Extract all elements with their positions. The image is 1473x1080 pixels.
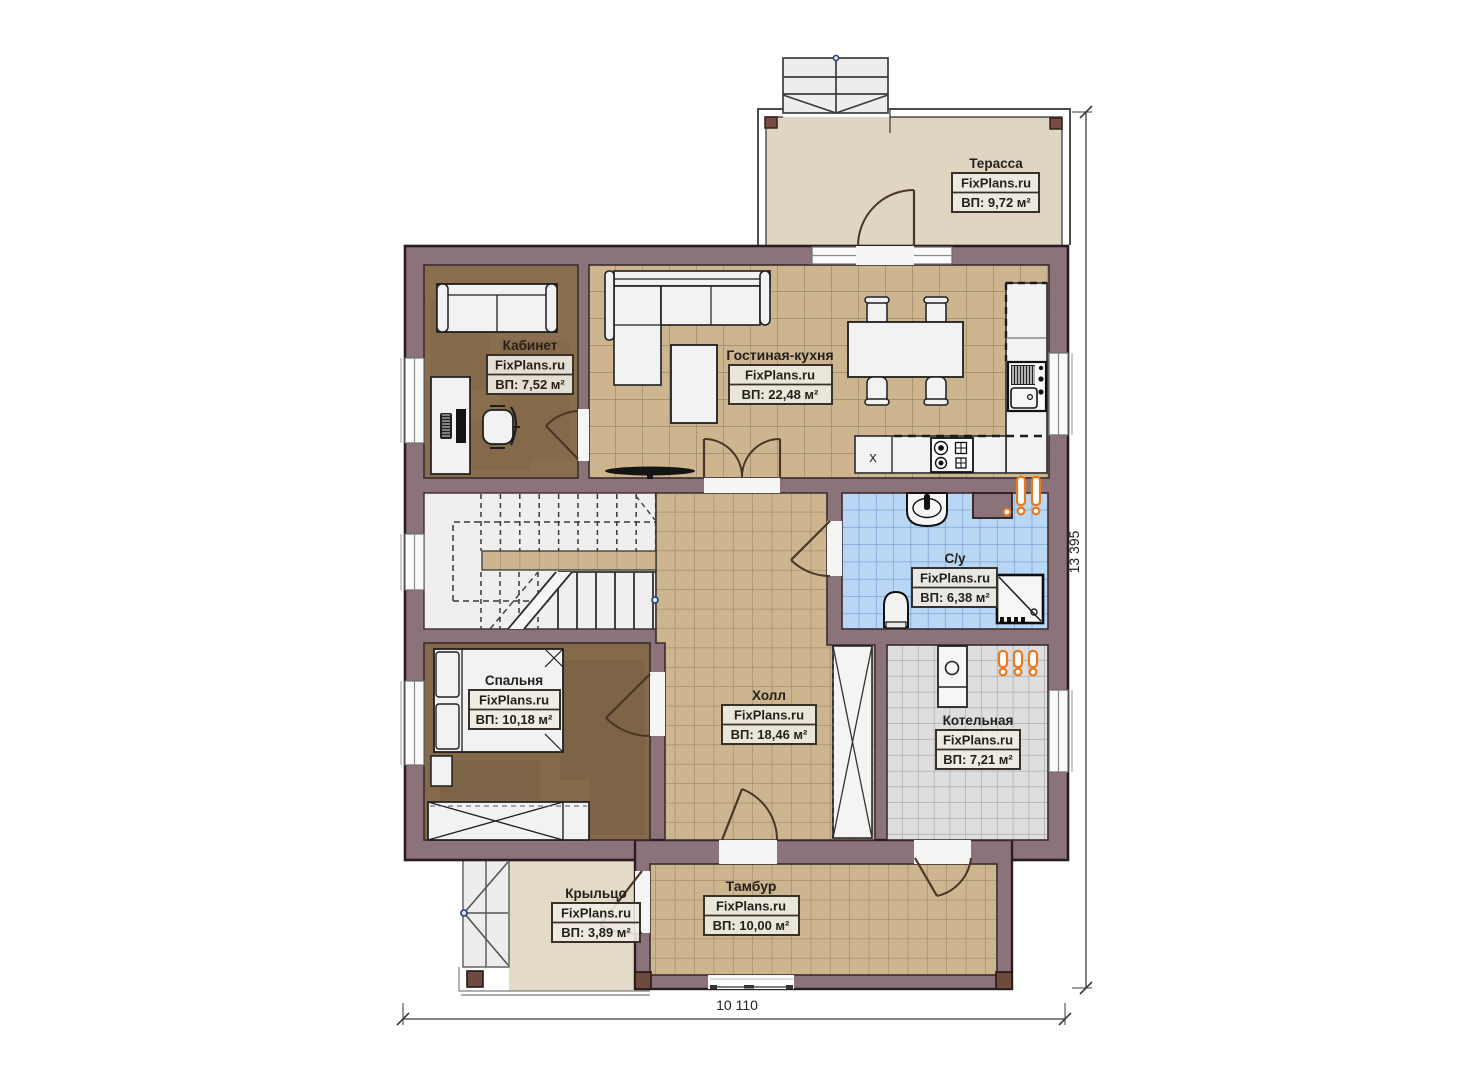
svg-text:Тамбур: Тамбур [726, 878, 777, 894]
svg-text:С/у: С/у [944, 551, 966, 566]
svg-text:FixPlans.ru: FixPlans.ru [920, 571, 990, 586]
svg-text:ВП: 22,48 м²: ВП: 22,48 м² [742, 387, 819, 402]
svg-text:FixPlans.ru: FixPlans.ru [495, 358, 565, 373]
svg-text:ВП: 7,21 м²: ВП: 7,21 м² [943, 752, 1013, 767]
svg-text:Крыльцо: Крыльцо [565, 886, 626, 901]
svg-text:ВП: 10,18 м²: ВП: 10,18 м² [476, 712, 553, 727]
svg-text:FixPlans.ru: FixPlans.ru [561, 906, 631, 921]
svg-text:FixPlans.ru: FixPlans.ru [716, 899, 786, 914]
svg-text:FixPlans.ru: FixPlans.ru [734, 708, 804, 723]
svg-text:10 110: 10 110 [716, 997, 758, 1013]
svg-text:Спальня: Спальня [485, 673, 543, 688]
svg-text:13 395: 13 395 [1066, 530, 1082, 573]
svg-text:ВП: 3,89 м²: ВП: 3,89 м² [561, 925, 631, 940]
svg-text:FixPlans.ru: FixPlans.ru [961, 176, 1031, 191]
svg-text:FixPlans.ru: FixPlans.ru [745, 368, 815, 383]
svg-text:Кабинет: Кабинет [503, 338, 558, 353]
svg-text:Холл: Холл [752, 688, 786, 703]
svg-text:ВП: 18,46 м²: ВП: 18,46 м² [731, 727, 808, 742]
svg-text:ВП: 10,00 м²: ВП: 10,00 м² [713, 918, 790, 933]
svg-text:Гостиная-кухня: Гостиная-кухня [726, 347, 833, 363]
svg-text:Терасса: Терасса [969, 156, 1023, 171]
svg-text:ВП: 7,52 м²: ВП: 7,52 м² [495, 377, 565, 392]
svg-text:ВП: 9,72 м²: ВП: 9,72 м² [961, 195, 1031, 210]
svg-text:ВП: 6,38 м²: ВП: 6,38 м² [920, 590, 990, 605]
svg-text:FixPlans.ru: FixPlans.ru [943, 733, 1013, 748]
svg-text:FixPlans.ru: FixPlans.ru [479, 693, 549, 708]
svg-text:x: x [869, 449, 877, 466]
svg-text:Котельная: Котельная [943, 713, 1014, 728]
